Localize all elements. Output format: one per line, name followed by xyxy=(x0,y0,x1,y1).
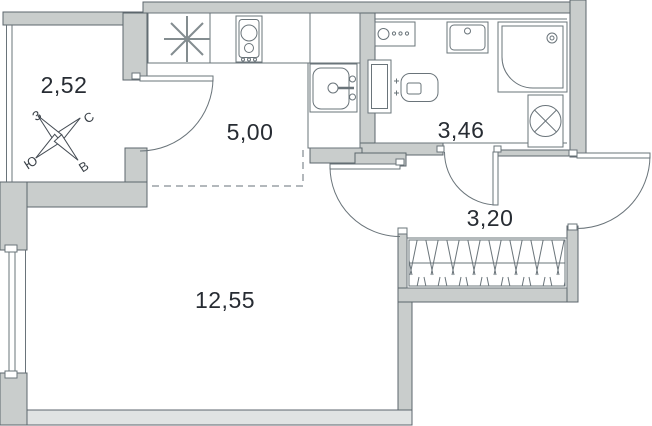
living-room-window xyxy=(5,245,26,378)
floor-plan-drawing: З С Ю В 2,52 5,00 3,46 3,20 12,55 xyxy=(0,0,652,426)
toilet-icon xyxy=(368,60,438,113)
compass-rose-icon: З С Ю В xyxy=(21,107,97,175)
appliance-panel-icon xyxy=(375,22,415,46)
kitchen-area-label: 5,00 xyxy=(227,119,274,145)
hallway-area-label: 3,20 xyxy=(467,205,514,231)
washing-machine-icon xyxy=(528,95,563,147)
wall-wardrobe-left xyxy=(398,230,407,288)
wall-bottom xyxy=(27,410,412,425)
floor-plan: З С Ю В 2,52 5,00 3,46 3,20 12,55 xyxy=(0,0,652,426)
bathroom-area-label: 3,46 xyxy=(438,117,485,143)
compass-east-label: В xyxy=(76,158,91,175)
bathroom-door xyxy=(437,146,501,205)
hob-icon xyxy=(236,16,262,62)
bath-sink-icon xyxy=(447,22,488,53)
kitchen-sink-icon xyxy=(310,64,357,112)
kitchen-zone-dashed-boundary xyxy=(152,150,303,186)
wall-room-right xyxy=(398,302,412,410)
wall-right xyxy=(570,0,586,157)
wall-hall-stub-a xyxy=(310,148,362,163)
wall-top xyxy=(143,2,586,13)
wall-balcony-right-lower xyxy=(125,148,147,184)
wall-left-pillar xyxy=(0,373,27,425)
living-room-area-label: 12,55 xyxy=(195,287,255,313)
wall-balcony-top xyxy=(3,12,143,25)
entrance-door xyxy=(568,150,650,230)
compass-north-label: С xyxy=(81,109,97,127)
balcony-door xyxy=(132,73,213,151)
shower-cabin-icon xyxy=(498,22,567,92)
wall-left-upper xyxy=(0,182,27,250)
balcony-glazing xyxy=(7,25,13,182)
wall-bath-south-thin xyxy=(497,150,570,156)
balcony-area-label: 2,52 xyxy=(41,72,88,98)
wardrobe xyxy=(407,238,567,288)
living-room-door xyxy=(330,159,407,237)
wall-balcony-right-upper xyxy=(123,13,147,80)
wall-wardrobe-right xyxy=(567,226,578,302)
wall-wardrobe-south xyxy=(398,288,578,302)
